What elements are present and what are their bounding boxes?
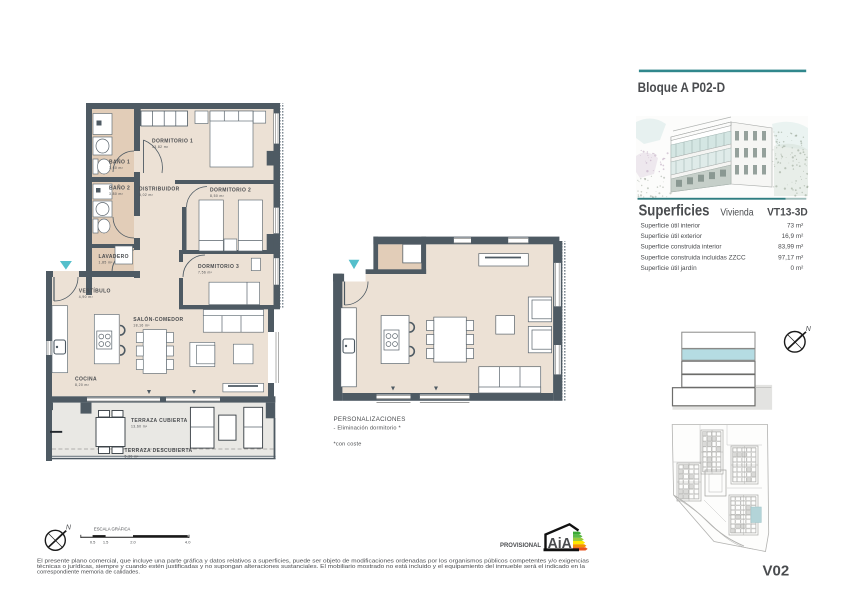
- svg-text:TERRAZA DESCUBIERTA: TERRAZA DESCUBIERTA: [125, 448, 193, 454]
- svg-text:Superficies: Superficies: [639, 203, 710, 220]
- svg-text:V02: V02: [763, 564, 790, 580]
- svg-text:AiA: AiA: [548, 536, 573, 552]
- svg-text:ESCALA GRÁFICA: ESCALA GRÁFICA: [94, 526, 131, 532]
- svg-text:2.0: 2.0: [130, 540, 136, 545]
- svg-text:5,02 m²: 5,02 m²: [139, 193, 154, 197]
- svg-text:5,30 m²: 5,30 m²: [125, 454, 140, 458]
- svg-text:73 m²: 73 m²: [787, 223, 803, 230]
- svg-text:16,9 m²: 16,9 m²: [782, 233, 804, 240]
- svg-text:Superficie útil interior: Superficie útil interior: [641, 223, 702, 230]
- svg-text:0 m²: 0 m²: [791, 265, 804, 272]
- svg-text:3,60 m²: 3,60 m²: [109, 166, 124, 170]
- svg-text:4.0: 4.0: [185, 540, 191, 545]
- svg-text:DISTRIBUIDOR: DISTRIBUIDOR: [139, 187, 180, 193]
- svg-text:- Eliminación dormitorio *: - Eliminación dormitorio *: [334, 426, 402, 432]
- svg-text:BAÑO 2: BAÑO 2: [109, 185, 130, 192]
- svg-text:Superficie construida incluida: Superficie construida incluidas ZZCC: [641, 254, 747, 261]
- svg-text:DORMITORIO 2: DORMITORIO 2: [210, 188, 251, 194]
- svg-text:8,50 m²: 8,50 m²: [210, 194, 225, 198]
- svg-text:TERRAZA CUBIERTA: TERRAZA CUBIERTA: [131, 418, 188, 424]
- svg-text:LAVADERO: LAVADERO: [99, 254, 129, 260]
- svg-text:PERSONALIZACIONES: PERSONALIZACIONES: [334, 416, 406, 423]
- svg-text:4,90 m²: 4,90 m²: [79, 295, 94, 299]
- svg-text:Superficie útil exterior: Superficie útil exterior: [641, 233, 703, 240]
- svg-text:correspondiente memoria de cal: correspondiente memoria de calidades.: [37, 570, 140, 576]
- svg-text:*con coste: *con coste: [334, 442, 362, 448]
- svg-text:13,82 m²: 13,82 m²: [152, 145, 169, 149]
- svg-text:97,17 m²: 97,17 m²: [778, 254, 803, 261]
- svg-text:BAÑO 1: BAÑO 1: [109, 159, 130, 166]
- svg-text:PROVISIONAL: PROVISIONAL: [500, 543, 541, 549]
- svg-text:8,20 m²: 8,20 m²: [75, 383, 90, 387]
- svg-text:Vivienda: Vivienda: [720, 207, 753, 219]
- svg-text:VT13-3D: VT13-3D: [767, 207, 808, 219]
- svg-text:3,80 m²: 3,80 m²: [109, 192, 124, 196]
- svg-text:DORMITORIO 1: DORMITORIO 1: [152, 139, 193, 145]
- svg-text:0.5: 0.5: [90, 540, 96, 545]
- svg-text:VESTÍBULO: VESTÍBULO: [79, 287, 111, 295]
- svg-text:Superficie útil jardín: Superficie útil jardín: [641, 265, 698, 272]
- svg-text:7,56 m²: 7,56 m²: [198, 270, 213, 274]
- svg-text:1,85 m²: 1,85 m²: [99, 260, 114, 264]
- svg-text:1.5: 1.5: [103, 540, 109, 545]
- svg-text:13,60 m²: 13,60 m²: [131, 424, 148, 428]
- svg-text:COCINA: COCINA: [75, 377, 97, 383]
- svg-text:SALÓN-COMEDOR: SALÓN-COMEDOR: [133, 315, 183, 323]
- svg-text:18,16 m²: 18,16 m²: [133, 323, 150, 327]
- svg-text:Superficie construida interior: Superficie construida interior: [641, 244, 723, 251]
- svg-text:83,99 m²: 83,99 m²: [778, 244, 803, 251]
- svg-text:DORMITORIO 3: DORMITORIO 3: [198, 264, 239, 270]
- svg-text:Bloque A P02-D: Bloque A P02-D: [638, 80, 726, 95]
